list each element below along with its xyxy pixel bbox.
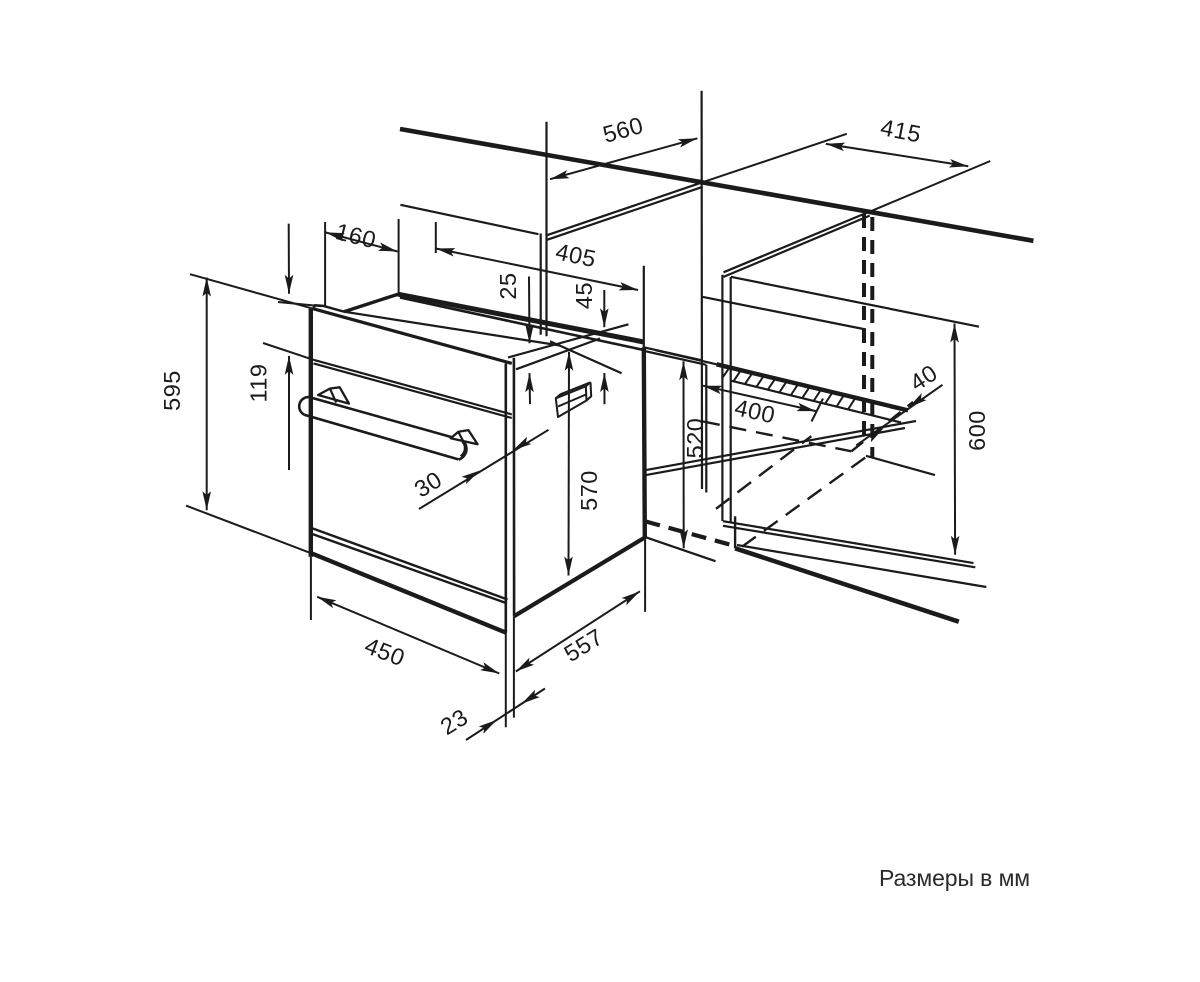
svg-text:Размеры в мм: Размеры в мм (879, 865, 1030, 891)
svg-text:600: 600 (964, 410, 990, 451)
svg-text:595: 595 (159, 370, 185, 411)
svg-text:119: 119 (245, 364, 271, 403)
svg-text:570: 570 (576, 470, 602, 511)
svg-text:45: 45 (571, 282, 597, 309)
svg-text:25: 25 (495, 272, 521, 299)
svg-text:520: 520 (682, 418, 708, 459)
